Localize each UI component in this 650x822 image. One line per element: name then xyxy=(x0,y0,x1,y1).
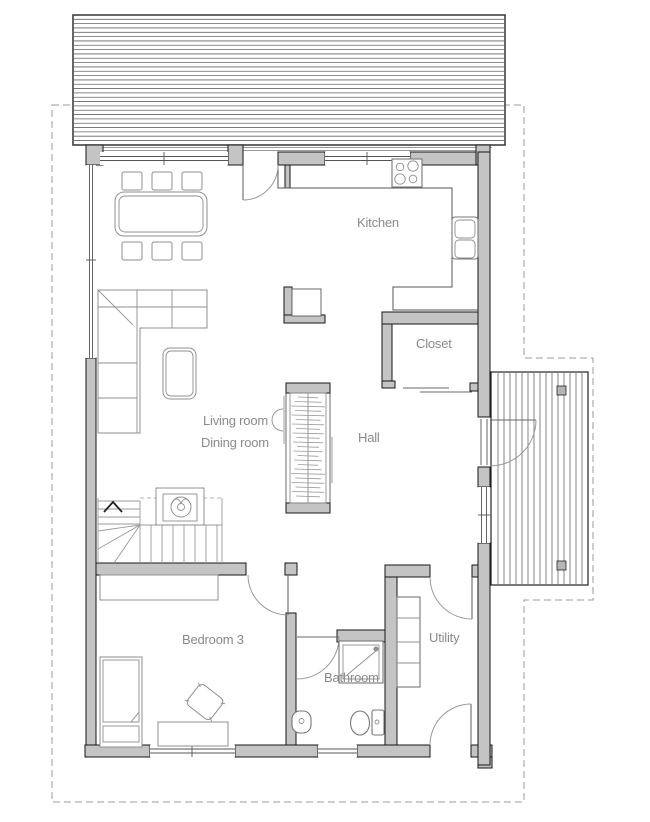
wall-closet-jamb xyxy=(470,383,478,391)
dining-chair xyxy=(122,172,142,190)
room-label-dining: Dining room xyxy=(201,435,269,450)
kitchen-counter xyxy=(278,165,478,310)
room-label-utility: Utility xyxy=(429,630,460,645)
roof xyxy=(73,15,505,151)
wall-right-post xyxy=(478,467,490,487)
front-door xyxy=(243,165,278,200)
fireplace xyxy=(156,488,204,525)
bathroom-sink xyxy=(292,711,311,733)
utility-door xyxy=(430,577,472,619)
wall-closet-left xyxy=(382,324,392,388)
wall-jamb-utility xyxy=(472,565,478,577)
room-label-bedroom3: Bedroom 3 xyxy=(182,632,244,647)
window-living-left xyxy=(86,165,96,358)
wall-bedroom-top-end xyxy=(285,563,297,575)
wall-bottom-b xyxy=(235,745,318,757)
wall-utility-top xyxy=(385,565,430,577)
wall-bottom-c xyxy=(357,745,430,757)
dining-chair xyxy=(152,242,172,260)
wall-top-a xyxy=(278,152,325,165)
dining-chair xyxy=(122,242,142,260)
bedroom-closet xyxy=(100,575,218,600)
deck xyxy=(491,372,588,585)
window-bathroom xyxy=(318,745,357,757)
window-living-top xyxy=(100,152,228,165)
stove xyxy=(392,159,422,187)
deck-post xyxy=(557,386,566,395)
closet-sliding-door xyxy=(403,388,472,392)
dining-chair xyxy=(182,172,202,190)
wall-bedroom-top xyxy=(96,563,246,575)
shower-head xyxy=(374,647,379,652)
kitchen-sink xyxy=(452,217,478,259)
room-label-bathroom: Bathroom xyxy=(324,670,379,685)
stairs-up-arrow xyxy=(104,502,122,512)
wall-left xyxy=(86,358,96,745)
dining-chair xyxy=(152,172,172,190)
deck-post xyxy=(557,561,566,570)
chair xyxy=(184,681,227,722)
room-label-closet: Closet xyxy=(416,336,452,351)
wall-bathroom-top xyxy=(337,630,385,642)
wall-utility-left xyxy=(385,565,397,745)
wall-closet-foot xyxy=(382,381,395,388)
wall-right-upper xyxy=(478,152,490,417)
floor-plan-canvas: Kitchen Closet Living room Dining room H… xyxy=(0,0,650,822)
dining-chair xyxy=(182,242,202,260)
room-label-kitchen: Kitchen xyxy=(357,215,399,230)
room-label-living: Living room xyxy=(203,413,268,428)
desk xyxy=(158,722,228,746)
utility-shelving xyxy=(397,597,420,687)
toilet xyxy=(351,710,385,735)
bathroom-fixtures xyxy=(292,641,384,735)
floor-plan: Kitchen Closet Living room Dining room H… xyxy=(0,0,650,822)
bedroom-door xyxy=(248,575,288,615)
hall-wardrobe xyxy=(286,383,330,513)
wall-right-lower xyxy=(478,543,490,765)
bed xyxy=(100,657,142,747)
wall-post-top xyxy=(228,145,243,165)
dining-set xyxy=(115,172,207,260)
kitchen-fixtures xyxy=(392,159,478,259)
utility-exterior-door xyxy=(430,704,471,745)
wall-entry-stub xyxy=(285,165,290,188)
wall-closet-top xyxy=(382,312,478,324)
bedroom-furniture xyxy=(100,575,228,747)
chimney-duct xyxy=(292,289,321,316)
window-hall-right xyxy=(478,487,490,543)
room-label-hall: Hall xyxy=(358,430,380,445)
dining-table xyxy=(115,192,207,236)
window-bedroom xyxy=(150,745,235,757)
coffee-table xyxy=(163,348,196,399)
